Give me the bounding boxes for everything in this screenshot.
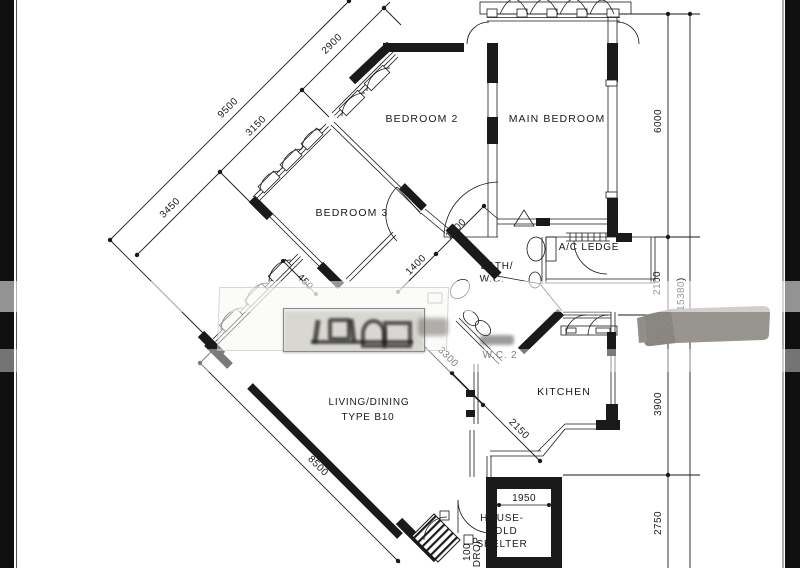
screen-edge-bar-left xyxy=(0,0,14,568)
doors-layer xyxy=(386,22,639,540)
dim-label-6000: 6000 xyxy=(653,109,664,133)
dim-label-2150: 2150 xyxy=(506,417,531,442)
redaction-blob xyxy=(637,306,770,346)
dim-label-1950: 1950 xyxy=(512,493,536,504)
room-label-shelter-line3: SHELTER xyxy=(477,539,528,550)
room-label-shelter-line1: HOUSE- xyxy=(480,513,524,524)
dim-label-2100: 2100 xyxy=(652,271,663,295)
dim-label-2750: 2750 xyxy=(653,511,664,535)
room-label-bath-line2: W.C. xyxy=(480,274,505,285)
room-label-kitchen: KITCHEN xyxy=(537,386,591,398)
floorplan-svg: BEDROOM 2 MAIN BEDROOM BEDROOM 3 BATH/ W… xyxy=(0,0,800,568)
dim-label-2900: 2900 xyxy=(320,32,345,57)
dim-label-3450: 3450 xyxy=(158,196,183,221)
dim-label-3150: 3150 xyxy=(244,114,269,139)
dim-label-drop: DROP xyxy=(472,537,483,568)
room-label-main-bedroom: MAIN BEDROOM xyxy=(509,113,606,125)
dim-label-3300: 3300 xyxy=(435,345,460,370)
room-label-bedroom3: BEDROOM 3 xyxy=(316,207,389,219)
room-label-bedroom2: BEDROOM 2 xyxy=(386,113,459,125)
fixtures-layer xyxy=(428,237,556,339)
room-label-living-line2: TYPE B10 xyxy=(341,412,394,423)
dim-label-3900: 3900 xyxy=(653,392,664,416)
dim-label-9500: 9500 xyxy=(216,96,241,121)
screen-edge-bar-right xyxy=(785,0,800,568)
room-label-ac-ledge: A/C LEDGE xyxy=(559,242,620,253)
room-label-bath-line1: BATH/ xyxy=(481,261,514,272)
floorplan-screenshot: BEDROOM 2 MAIN BEDROOM BEDROOM 3 BATH/ W… xyxy=(0,0,800,568)
room-label-living-line1: LIVING/DINING xyxy=(329,397,410,408)
room-label-wc2: W.C. 2 xyxy=(483,350,518,361)
room-label-shelter-line2: HOLD xyxy=(487,526,518,537)
